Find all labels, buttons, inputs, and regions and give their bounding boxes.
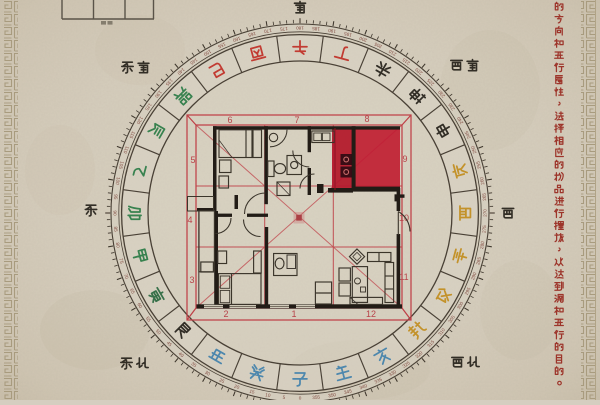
svg-text:275: 275 (481, 225, 487, 234)
svg-text:175: 175 (279, 26, 288, 32)
svg-text:95: 95 (113, 194, 118, 200)
svg-text:355: 355 (312, 394, 321, 400)
svg-text:12: 12 (366, 309, 376, 319)
svg-text:265: 265 (481, 192, 487, 201)
svg-text:85: 85 (113, 226, 118, 232)
svg-text:180: 180 (296, 26, 304, 31)
svg-text:90: 90 (113, 210, 118, 216)
svg-text:9: 9 (402, 154, 407, 164)
svg-text:0: 0 (299, 396, 302, 401)
svg-text:11: 11 (399, 272, 408, 282)
svg-text:5: 5 (190, 155, 195, 165)
svg-text:4: 4 (187, 215, 192, 225)
svg-text:3: 3 (189, 275, 194, 285)
svg-text:185: 185 (312, 26, 321, 32)
svg-text:1: 1 (291, 309, 296, 319)
svg-text:270: 270 (483, 209, 488, 217)
svg-text:7: 7 (294, 115, 299, 125)
svg-text:2: 2 (223, 309, 228, 319)
svg-text:8: 8 (364, 114, 369, 124)
svg-text:6: 6 (227, 115, 232, 125)
